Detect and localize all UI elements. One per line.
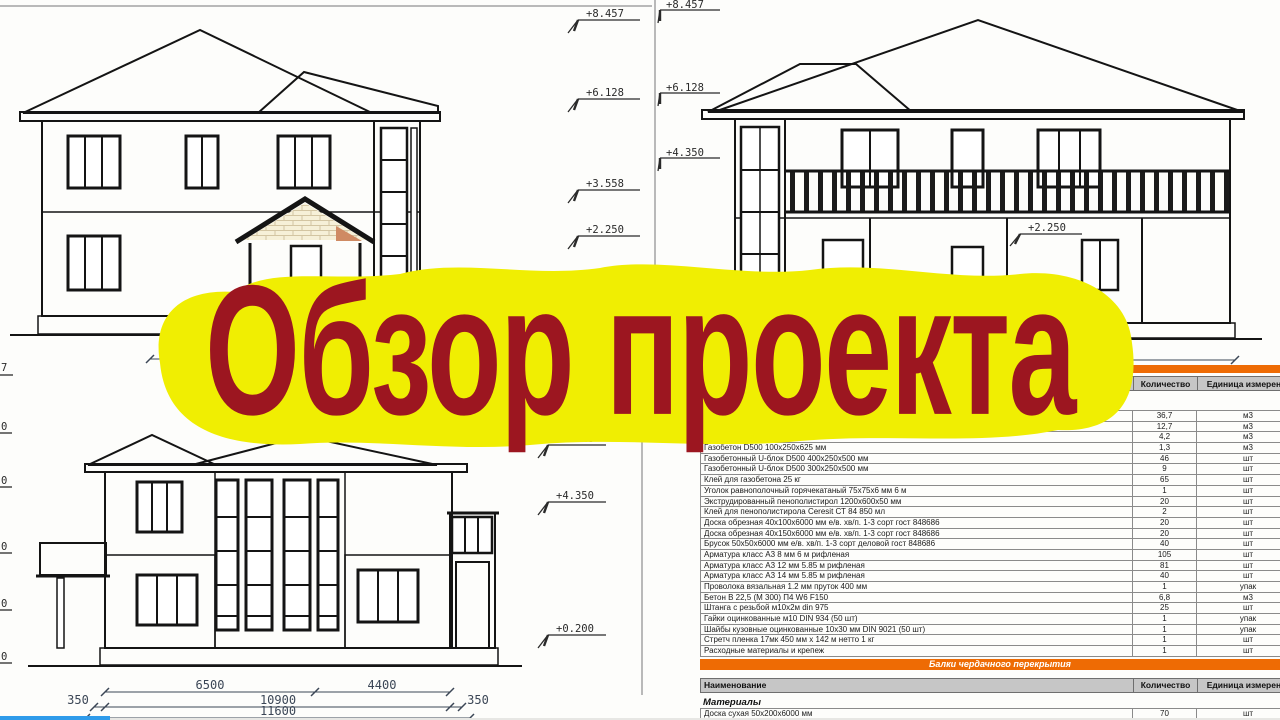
dimension-chain: 6500 4400 350 10900 350 11600 [67,678,489,720]
cell-qty: 1 [1133,646,1197,657]
cell-name: Гайки оцинкованные м10 DIN 934 (50 шт) [701,614,1133,625]
svg-text:0: 0 [1,475,7,487]
cell-unit: шт [1197,646,1280,657]
cell-unit: м3 [1197,443,1280,454]
elevation-mark-label: +0.200 [556,623,594,635]
table-row: Уголок равнополочный горячекатаный 75х75… [701,486,1280,497]
elevation-mark-label: +4.350 [666,147,704,159]
table-row: Газобетонный U-блок D500 300х250х500 мм … [701,464,1280,475]
elevation-mark: +0.200 [538,623,606,648]
svg-text:0: 0 [1,541,7,553]
roof [20,30,440,121]
cell-unit: шт [1197,518,1280,529]
cell-name: Шайбы кузовные оцинкованные 10х30 мм DIN… [701,625,1133,636]
cell-qty: 6,8 [1133,593,1197,604]
elevation-mark-label: +8.457 [666,0,704,11]
thumbnail-root: { "banner": { "text": "Обзор проекта" },… [0,0,1280,720]
cell-name: Стретч пленка 17мк 450 мм х 142 м нетто … [701,635,1133,646]
header-unit: Единица измерения [1198,679,1280,692]
cell-qty: 9 [1133,464,1197,475]
banner-title: Обзор проекта [240,238,1039,462]
elevation-mark: +8.457 [658,0,720,23]
window-upper-left [137,482,182,532]
svg-text:0: 0 [1,598,7,610]
balcony-post [57,578,64,648]
table-row: Экструдированный пенополистирол 1200х600… [701,497,1280,508]
cell-qty: 65 [1133,475,1197,486]
cell-unit: шт [1197,550,1280,561]
dimension-label: 350 [467,693,489,707]
cell-unit: шт [1197,571,1280,582]
cell-qty: 1 [1133,635,1197,646]
elevation-mark: +4.350 [658,147,720,171]
svg-text:+2.250: +2.250 [1028,222,1066,234]
edge-partial-mark: 7 [0,362,13,375]
edge-partial-marks: 0 0 0 0 0 [0,421,12,663]
cell-name: Доска обрезная 40х100х6000 мм е/в. хв/п.… [701,518,1133,529]
cell-unit: шт [1197,475,1280,486]
window-upper-middle [186,136,218,188]
svg-text:0: 0 [1,421,7,433]
cell-unit: м3 [1197,422,1280,433]
table-row: Шайбы кузовные оцинкованные 10х30 мм DIN… [701,625,1280,636]
cell-qty: 1 [1133,582,1197,593]
cell-qty: 20 [1133,529,1197,540]
table-row: Доска обрезная 40х100х6000 мм е/в. хв/п.… [701,518,1280,529]
cell-qty: 1 [1133,614,1197,625]
cell-unit: шт [1197,539,1280,550]
cell-name: Штанга с резьбой м10х2м din 975 [701,603,1133,614]
cell-unit: шт [1197,497,1280,508]
svg-text:7: 7 [1,362,7,374]
cell-qty: 81 [1133,561,1197,572]
elevation-mark-label: +3.558 [586,178,624,190]
cell-qty: 40 [1133,571,1197,582]
cell-name: Бетон В 22,5 (М 300) П4 W6 F150 [701,593,1133,604]
cell-unit: шт [1197,561,1280,572]
cell-unit: упак [1197,582,1280,593]
elevation-drawing-bottom-left: 6500 4400 350 10900 350 11600 +6.128 +4.… [0,420,650,720]
cell-unit: шт [1197,507,1280,518]
cell-unit: м3 [1197,432,1280,443]
dimension-label: 11600 [260,704,296,718]
elevation-mark: +8.457 [568,8,640,33]
section-band-beams: Балки чердачного перекрытия [700,659,1280,670]
cell-qty: 25 [1133,603,1197,614]
cell-name: Арматура класс А3 8 мм 6 м рифленая [701,550,1133,561]
cell-qty: 1 [1133,625,1197,636]
cell-qty: 40 [1133,539,1197,550]
cell-unit: шт [1197,464,1280,475]
cell-name: Клей для пенополистирола Ceresit СТ 84 8… [701,507,1133,518]
window-lower-left [137,575,197,625]
cell-name: Клей для газобетона 25 кг [701,475,1133,486]
dimension-label: 4400 [368,678,397,692]
elevation-mark: +6.128 [568,87,640,112]
window-lower-right [358,570,418,622]
cell-name: Доска обрезная 40х150х6000 мм е/в. хв/п.… [701,529,1133,540]
table-row: Проволока вязальная 1.2 мм пруток 400 мм… [701,582,1280,593]
cell-name: Брусок 50х50х6000 мм е/в. хв/п. 1-3 сорт… [701,539,1133,550]
cell-unit: шт [1197,603,1280,614]
elevation-mark: +4.350 [538,490,606,515]
elevation-mark: +6.128 [658,82,720,106]
window-upper-left [68,136,120,188]
cell-name: Расходные материалы и крепеж [701,646,1133,657]
table-row: Бетон В 22,5 (М 300) П4 W6 F150 6,8 м3 [701,593,1280,604]
cell-unit: м3 [1197,593,1280,604]
balcony [36,543,110,648]
dimension-label: 6500 [196,678,225,692]
side-door [456,562,489,648]
video-progress-bar[interactable] [0,716,110,720]
section-title: Балки чердачного перекрытия [929,659,1071,669]
header-name: Наименование [701,679,1134,692]
header-unit: Единица измерения [1198,377,1280,390]
cell-unit: шт [1197,486,1280,497]
cell-unit: упак [1197,625,1280,636]
cell-qty: 20 [1133,497,1197,508]
dimension-label: 350 [67,693,89,707]
cell-qty: 105 [1133,550,1197,561]
svg-text:0: 0 [1,651,7,663]
elevation-mark-label: +6.128 [666,82,704,94]
window-upper-right [278,136,330,188]
table-row: Арматура класс А3 12 мм 5.85 м рифленая … [701,561,1280,572]
table-row: Гайки оцинкованные м10 DIN 934 (50 шт) 1… [701,614,1280,625]
elevation-mark-label: +2.250 [586,224,624,236]
elevation-mark-label: +8.457 [586,8,624,20]
table-row: Стретч пленка 17мк 450 мм х 142 м нетто … [701,635,1280,646]
table-row: Клей для пенополистирола Ceresit СТ 84 8… [701,507,1280,518]
cell-unit: шт [1197,454,1280,465]
table-row: Клей для газобетона 25 кг 65 шт [701,475,1280,486]
group-label: Материалы [700,697,1280,708]
cell-unit: упак [1197,614,1280,625]
table-row: Доска обрезная 40х150х6000 мм е/в. хв/п.… [701,529,1280,540]
cell-name: Газобетонный U-блок D500 300х250х500 мм [701,464,1133,475]
table-row: Расходные материалы и крепеж 1 шт [701,646,1280,657]
table-header-2: Наименование Количество Единица измерени… [700,678,1280,693]
cell-name: Уголок равнополочный горячекатаный 75х75… [701,486,1133,497]
table-row: Арматура класс А3 8 мм 6 м рифленая 105 … [701,550,1280,561]
side-extension [447,513,499,648]
foundation [100,648,498,665]
table-row: Штанга с резьбой м10х2м din 975 25 шт [701,603,1280,614]
cell-unit: шт [1197,635,1280,646]
center-glazing [216,480,338,630]
cell-qty: 2 [1133,507,1197,518]
elevation-mark: +3.558 [568,178,640,203]
cell-qty: 1 [1133,486,1197,497]
table-row: Брусок 50х50х6000 мм е/в. хв/п. 1-3 сорт… [701,539,1280,550]
elevation-mark-label: +6.128 [586,87,624,99]
cell-unit: м3 [1197,411,1280,422]
cell-name: Экструдированный пенополистирол 1200х600… [701,497,1133,508]
cell-name: Арматура класс А3 12 мм 5.85 м рифленая [701,561,1133,572]
roof [702,20,1244,119]
cell-unit: шт [1197,529,1280,540]
cell-qty: 20 [1133,518,1197,529]
elevation-mark-label: +4.350 [556,490,594,502]
balcony-railing [785,171,1230,212]
header-qty: Количество [1134,679,1198,692]
cell-name: Арматура класс А3 14 мм 5.85 м рифленая [701,571,1133,582]
cell-name: Проволока вязальная 1.2 мм пруток 400 мм [701,582,1133,593]
table-row: Арматура класс А3 14 мм 5.85 м рифленая … [701,571,1280,582]
